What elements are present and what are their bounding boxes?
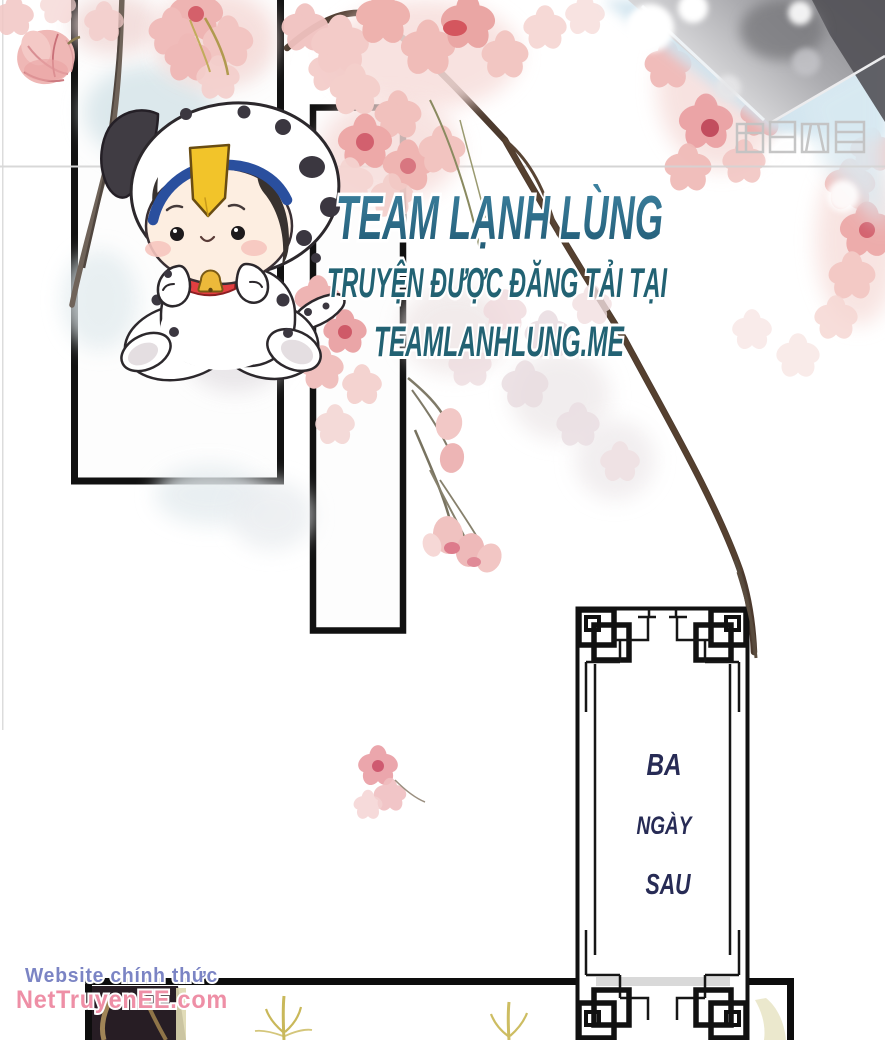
svg-text:NGÀY: NGÀY [637, 811, 694, 840]
svg-text:TEAMLANHLUNG.ME: TEAMLANHLUNG.ME [374, 318, 625, 366]
svg-text:Website chính thức: Website chính thức [25, 965, 218, 987]
svg-text:SAU: SAU [646, 869, 692, 901]
svg-text:NetTruyenEE.com: NetTruyenEE.com [16, 986, 228, 1014]
svg-text:TRUYỆN ĐƯỢC ĐĂNG TẢI TẠI: TRUYỆN ĐƯỢC ĐĂNG TẢI TẠI [327, 258, 668, 306]
svg-text:BA: BA [647, 747, 682, 782]
svg-text:TEAM LẠNH LÙNG: TEAM LẠNH LÙNG [336, 184, 663, 253]
